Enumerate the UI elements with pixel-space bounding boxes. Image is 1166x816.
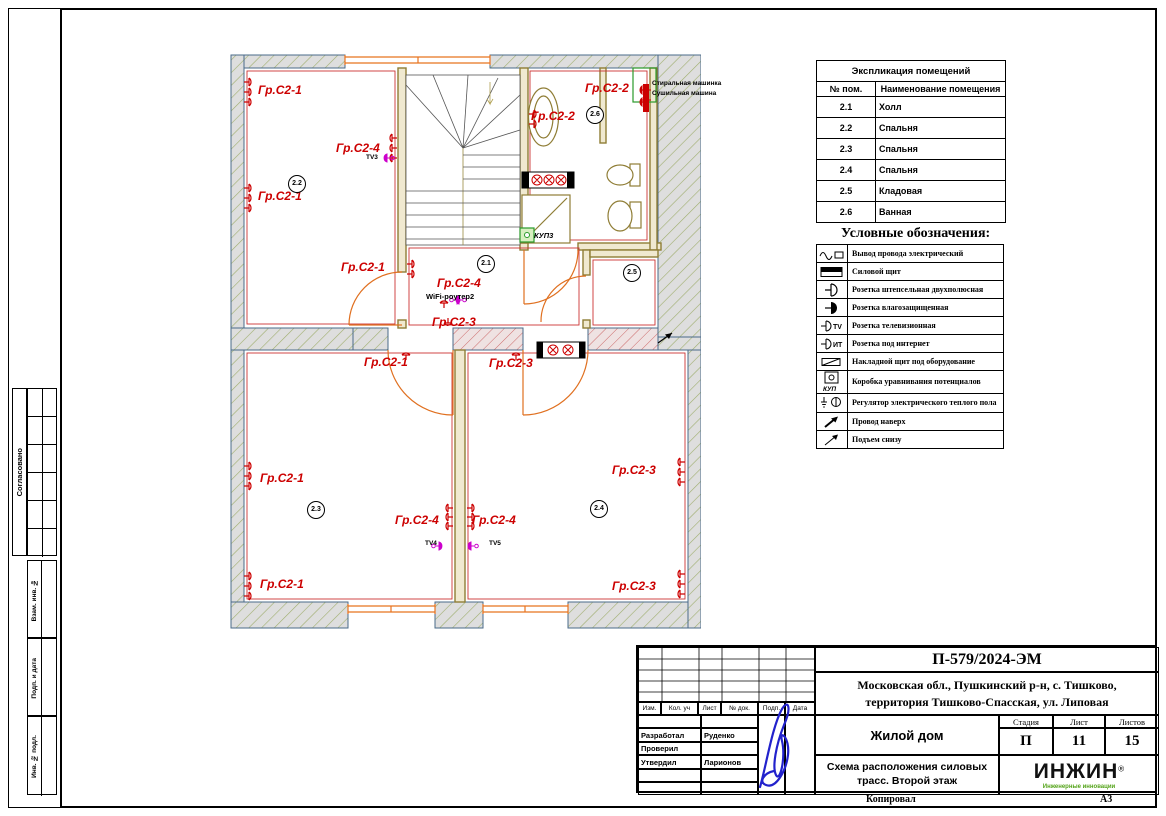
role-checked: Проверил bbox=[638, 742, 701, 755]
legend-table: Вывод провода электрический Силовой щит … bbox=[816, 244, 1004, 449]
circuit-label: Гр.С2-1 bbox=[260, 472, 304, 484]
col-list: Лист bbox=[698, 702, 721, 715]
sheet-title: Схема расположения силовых трасс. Второй… bbox=[815, 755, 999, 795]
circuit-label: Гр.С2-4 bbox=[437, 277, 481, 289]
tv-socket-label: ТV5 bbox=[489, 541, 501, 548]
legend-item: Коробка уравнивания потенциалов bbox=[848, 375, 1003, 389]
room-number: 2.4 bbox=[590, 500, 608, 518]
stage-value: П bbox=[999, 728, 1053, 755]
circuit-label: Гр.С2-1 bbox=[260, 578, 304, 590]
circuit-label: Гр.С2-3 bbox=[612, 464, 656, 476]
kup-box bbox=[520, 228, 534, 242]
circuit-label: Гр.С2-4 bbox=[472, 514, 516, 526]
room-number: 2.3 bbox=[307, 501, 325, 519]
explication-col-name: Наименование помещения bbox=[876, 82, 1006, 97]
wire-up-icon bbox=[817, 413, 848, 430]
washer-label: Стиральная машинка bbox=[652, 81, 721, 88]
copied-label: Копировал bbox=[866, 794, 916, 805]
tv-socket-label: ТV3 bbox=[366, 155, 378, 162]
logo-text: ИНЖИН bbox=[1034, 760, 1119, 783]
col-izm: Изм. bbox=[638, 702, 661, 715]
socket-internet-icon: ИТ bbox=[817, 335, 848, 352]
surface-panel-icon bbox=[817, 353, 848, 370]
stage-label: Стадия bbox=[999, 715, 1053, 728]
margin-vzam-label: Взам. инв. № bbox=[31, 579, 38, 621]
floor-plan bbox=[228, 50, 701, 630]
legend-item: Накладной щит под оборудование bbox=[848, 355, 1003, 369]
margin-agreed-cell: Согласовано bbox=[12, 388, 27, 556]
circuit-label: Гр.С2-3 bbox=[612, 580, 656, 592]
project-address: Московская обл., Пушкинский р-н, с. Тишк… bbox=[815, 672, 1159, 715]
revision-grid bbox=[638, 647, 815, 702]
power-panel-icon bbox=[817, 263, 848, 280]
socket-moistureproof-icon bbox=[817, 299, 848, 316]
kup-label: КУП3 bbox=[534, 232, 553, 240]
kup-icon: КУП bbox=[817, 371, 848, 393]
socket-tv-icon: ТV bbox=[817, 317, 848, 334]
socket-2pole-icon bbox=[817, 281, 848, 298]
room-num: 2.6 bbox=[817, 202, 876, 223]
legend-item: Провод наверх bbox=[848, 415, 1003, 429]
circuit-label: Гр.С2-1 bbox=[258, 84, 302, 96]
svg-text:ТV: ТV bbox=[833, 324, 842, 331]
legend-item: Регулятор электрического теплого пола bbox=[848, 396, 1003, 410]
svg-text:ИТ: ИТ bbox=[833, 342, 843, 349]
floor-heating-regulator-icon bbox=[817, 394, 848, 412]
sheet-value: 11 bbox=[1053, 728, 1105, 755]
room-name: Ванная bbox=[876, 202, 1006, 223]
room-name: Холл bbox=[876, 97, 1006, 118]
circuit-label: Гр.С2-1 bbox=[341, 261, 385, 273]
signature bbox=[746, 697, 802, 793]
circuit-label: Гр.С2-2 bbox=[585, 82, 629, 94]
socket-box-laundry bbox=[522, 172, 574, 188]
legend-item: Силовой щит bbox=[848, 265, 1003, 279]
margin-inv-block: Инв. № подл. bbox=[27, 716, 57, 795]
dryer-label: Сушильная машина bbox=[652, 91, 716, 98]
wifi-router-label: WiFi-роутер2 bbox=[426, 293, 474, 301]
room-num: 2.4 bbox=[817, 160, 876, 181]
legend-item: Вывод провода электрический bbox=[848, 247, 1003, 261]
legend-item: Подъем снизу bbox=[848, 433, 1003, 447]
room-number: 2.2 bbox=[288, 175, 306, 193]
room-num: 2.2 bbox=[817, 118, 876, 139]
margin-vzam-block: Взам. инв. № bbox=[27, 560, 57, 638]
stairs bbox=[406, 75, 520, 245]
room-num: 2.5 bbox=[817, 181, 876, 202]
logo-registered-mark: ® bbox=[1118, 764, 1124, 773]
tv-socket-label: ТV4 bbox=[425, 541, 437, 548]
room-number: 2.6 bbox=[586, 106, 604, 124]
sheet-label: Лист bbox=[1053, 715, 1105, 728]
margin-podp-block: Подп. и дата bbox=[27, 638, 57, 716]
sheets-label: Листов bbox=[1105, 715, 1159, 728]
rise-from-below-icon bbox=[817, 431, 848, 448]
socket-box-corridor bbox=[537, 342, 585, 358]
doc-number: П-579/2024-ЭМ bbox=[815, 647, 1159, 672]
divider bbox=[42, 389, 43, 557]
role-developed: Разработал bbox=[638, 728, 701, 742]
room-name: Спальня bbox=[876, 139, 1006, 160]
room-number: 2.1 bbox=[477, 255, 495, 273]
room-explication-table: Экспликация помещений № пом. Наименовани… bbox=[816, 60, 1006, 223]
margin-agreed-grid bbox=[27, 388, 57, 556]
legend-item: Розетка под интернет bbox=[848, 337, 1003, 351]
explication-col-num: № пом. bbox=[817, 82, 876, 97]
margin-podp-label: Подп. и дата bbox=[31, 658, 38, 699]
room-name: Кладовая bbox=[876, 181, 1006, 202]
title-block: Изм. Кол. уч Лист № док. Подп. Дата Разр… bbox=[636, 645, 1157, 793]
circuit-label: Гр.С2-4 bbox=[336, 142, 380, 154]
margin-inv-label: Инв. № подл. bbox=[31, 735, 38, 778]
circuit-label: Гр.С2-4 bbox=[395, 514, 439, 526]
explication-title: Экспликация помещений bbox=[817, 61, 1006, 82]
room-name: Спальня bbox=[876, 118, 1006, 139]
legend-item: Розетка штепсельная двухполюсная bbox=[848, 283, 1003, 297]
company-logo: ИНЖИН® Инженерные инновации bbox=[999, 755, 1159, 795]
sheets-value: 15 bbox=[1105, 728, 1159, 755]
circuit-label: Гр.С2-3 bbox=[432, 316, 476, 328]
circuit-label: Гр.С2-3 bbox=[489, 357, 533, 369]
role-approved: Утвердил bbox=[638, 755, 701, 769]
margin-agreed-label: Согласовано bbox=[15, 448, 24, 496]
room-number: 2.5 bbox=[623, 264, 641, 282]
legend-title: Условные обозначения: bbox=[841, 226, 990, 242]
format-label: А3 bbox=[1100, 794, 1112, 805]
circuit-label: Гр.С2-1 bbox=[364, 356, 408, 368]
room-name: Спальня bbox=[876, 160, 1006, 181]
wire-exit-icon bbox=[817, 245, 848, 262]
svg-text:КУП: КУП bbox=[823, 386, 836, 393]
circuit-label: Гр.С2-2 bbox=[531, 110, 575, 122]
col-kol: Кол. уч bbox=[661, 702, 698, 715]
room-num: 2.1 bbox=[817, 97, 876, 118]
drawing-sheet: Согласовано Взам. инв. № Подп. и дата Ин… bbox=[0, 0, 1166, 816]
legend-item: Розетка телевизионная bbox=[848, 319, 1003, 333]
legend-item: Розетка влагозащищенная bbox=[848, 301, 1003, 315]
logo-tagline: Инженерные инновации bbox=[1043, 784, 1115, 790]
room-num: 2.3 bbox=[817, 139, 876, 160]
object-name: Жилой дом bbox=[815, 715, 999, 755]
